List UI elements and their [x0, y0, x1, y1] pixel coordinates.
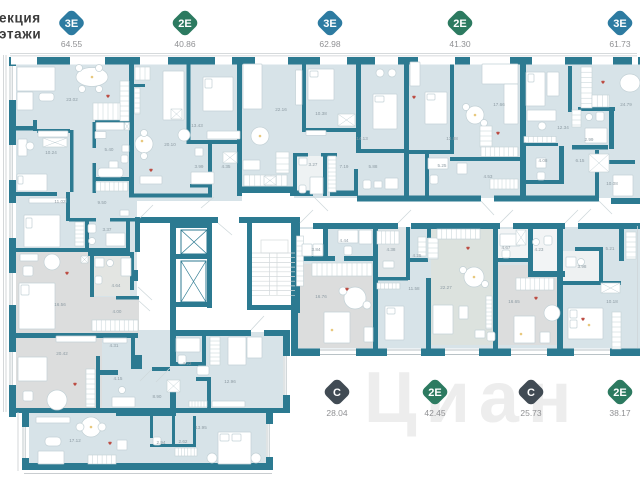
svg-text:9.50: 9.50 [98, 200, 107, 205]
svg-text:екция: екция [0, 11, 41, 26]
svg-text:10.08: 10.08 [606, 181, 618, 186]
svg-text:10.18: 10.18 [606, 299, 618, 304]
svg-text:22.16: 22.16 [275, 107, 287, 112]
svg-text:16.76: 16.76 [315, 294, 327, 299]
svg-text:10.24: 10.24 [45, 150, 57, 155]
svg-text:4.64: 4.64 [112, 283, 121, 288]
svg-text:38.17: 38.17 [609, 408, 631, 418]
svg-text:3.37: 3.37 [103, 227, 112, 232]
svg-text:5.40: 5.40 [105, 147, 114, 152]
svg-text:3.98: 3.98 [578, 264, 587, 269]
svg-text:11.58: 11.58 [408, 286, 420, 291]
svg-text:13.95: 13.95 [195, 425, 207, 430]
svg-text:2.94: 2.94 [157, 440, 166, 445]
svg-text:2Е: 2Е [613, 387, 626, 399]
svg-text:3.84: 3.84 [312, 247, 321, 252]
svg-text:4.23: 4.23 [535, 247, 544, 252]
svg-text:4.67: 4.67 [502, 245, 511, 250]
svg-text:4.53: 4.53 [484, 174, 493, 179]
svg-text:3Е: 3Е [613, 18, 626, 30]
svg-text:17.66: 17.66 [493, 102, 505, 107]
svg-text:С: С [527, 387, 535, 399]
svg-text:12.96: 12.96 [224, 379, 236, 384]
svg-text:11.02: 11.02 [54, 199, 66, 204]
svg-text:2.62: 2.62 [179, 439, 188, 444]
svg-text:4.15: 4.15 [114, 376, 123, 381]
svg-text:4.22: 4.22 [183, 361, 192, 366]
svg-text:14.13: 14.13 [356, 136, 368, 141]
svg-text:4.31: 4.31 [110, 343, 119, 348]
svg-text:5.25: 5.25 [438, 163, 447, 168]
svg-text:5.88: 5.88 [369, 164, 378, 169]
svg-text:62.98: 62.98 [319, 39, 341, 49]
svg-text:4.25: 4.25 [413, 253, 422, 258]
svg-text:42.45: 42.45 [424, 408, 446, 418]
svg-text:20.10: 20.10 [164, 142, 176, 147]
svg-text:40.86: 40.86 [174, 39, 196, 49]
svg-text:4.35: 4.35 [222, 164, 231, 169]
svg-text:28.04: 28.04 [326, 408, 348, 418]
svg-text:3.27: 3.27 [309, 162, 318, 167]
svg-text:24.79: 24.79 [620, 102, 632, 107]
svg-text:17.12: 17.12 [69, 438, 81, 443]
svg-text:Циан: Циан [364, 358, 580, 438]
svg-text:22.27: 22.27 [440, 285, 452, 290]
svg-text:23.02: 23.02 [66, 97, 78, 102]
svg-text:64.55: 64.55 [61, 39, 83, 49]
svg-text:25.73: 25.73 [520, 408, 542, 418]
svg-text:3.99: 3.99 [195, 164, 204, 169]
svg-text:12.34: 12.34 [557, 125, 569, 130]
svg-text:2Е: 2Е [428, 387, 441, 399]
svg-text:3Е: 3Е [323, 18, 336, 30]
svg-text:2Е: 2Е [453, 18, 466, 30]
svg-text:этажи: этажи [0, 27, 41, 42]
svg-text:10.38: 10.38 [315, 111, 327, 116]
svg-text:2Е: 2Е [178, 18, 191, 30]
svg-text:7.19: 7.19 [340, 164, 349, 169]
svg-text:13.43: 13.43 [191, 123, 203, 128]
svg-text:4.44: 4.44 [340, 238, 349, 243]
svg-text:С: С [333, 387, 341, 399]
svg-text:61.73: 61.73 [609, 39, 631, 49]
svg-text:4.08: 4.08 [539, 158, 548, 163]
svg-text:5.21: 5.21 [606, 246, 615, 251]
svg-text:6.15: 6.15 [576, 158, 585, 163]
svg-text:16.56: 16.56 [54, 302, 66, 307]
svg-text:4.00: 4.00 [113, 309, 122, 314]
svg-text:16.65: 16.65 [508, 299, 520, 304]
svg-text:4.38: 4.38 [387, 247, 396, 252]
svg-text:13.88: 13.88 [446, 136, 458, 141]
svg-text:8.90: 8.90 [153, 394, 162, 399]
svg-text:3Е: 3Е [65, 18, 78, 30]
svg-text:20.42: 20.42 [56, 351, 68, 356]
svg-text:2.99: 2.99 [585, 137, 594, 142]
svg-text:41.30: 41.30 [449, 39, 471, 49]
